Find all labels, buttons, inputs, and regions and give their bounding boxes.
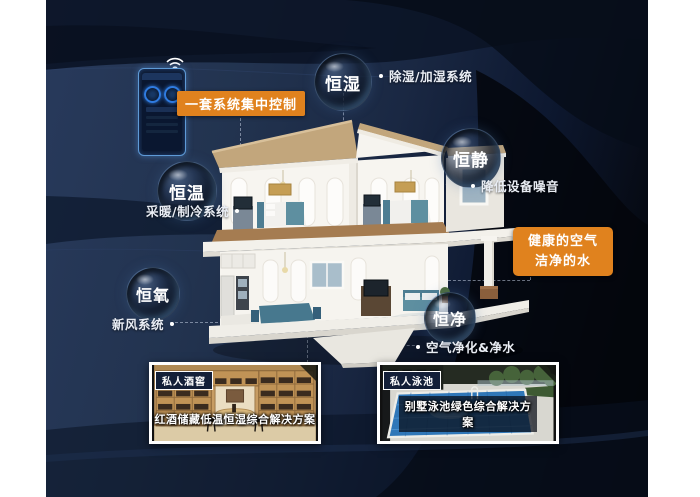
phone-ui-row <box>146 107 178 112</box>
bubble-constant-humidity: 恒湿 <box>314 53 372 111</box>
note-air-water-purification: 空气净化&净水 <box>416 337 515 356</box>
pool-tag: 私人泳池 <box>383 371 441 390</box>
phone-screen <box>142 73 182 151</box>
callout-line1: 健康的空气 <box>513 232 613 252</box>
note-dehumidify-humidify: 除湿/加湿系统 <box>379 66 472 85</box>
phone-ui-row <box>146 116 178 119</box>
bubble-label: 恒湿 <box>325 70 361 95</box>
bubble-label: 恒净 <box>433 306 467 330</box>
bubble-constant-oxygen: 恒氧 <box>126 267 180 321</box>
note-text: 采暖/制冷系统 <box>146 201 229 220</box>
smart-home-infographic: 一套系统集中控制 恒湿 恒静 恒温 恒氧 恒净 除湿/加湿系统 降低设备噪音 采… <box>0 0 700 497</box>
card-corner-ribbon <box>538 365 556 383</box>
wine-cellar-card: 私人酒窖 红酒储藏低温恒湿综合解决方案 <box>149 362 321 444</box>
bullet-dot <box>235 209 239 213</box>
phone-ui-row <box>146 130 178 133</box>
note-text: 空气净化&净水 <box>426 337 515 356</box>
pool-caption: 别墅泳池绿色综合解决方案 <box>399 396 536 432</box>
note-fresh-air: 新风系统 <box>112 314 174 333</box>
bullet-dot <box>170 322 174 326</box>
note-text: 降低设备噪音 <box>481 176 559 195</box>
note-text: 除湿/加湿系统 <box>389 66 472 85</box>
note-text: 新风系统 <box>112 314 164 333</box>
bullet-dot <box>416 345 420 349</box>
phone-ui-row <box>146 123 178 126</box>
card-corner-ribbon <box>300 365 318 383</box>
bubble-label: 恒静 <box>453 146 489 171</box>
note-heating-cooling: 采暖/制冷系统 <box>146 201 239 220</box>
bubble-label: 恒氧 <box>136 282 170 306</box>
callout-line2: 洁净的水 <box>513 252 613 272</box>
bullet-dot <box>379 74 383 78</box>
bullet-dot <box>471 184 475 188</box>
control-knob-icon <box>144 86 161 103</box>
central-control-label: 一套系统集中控制 <box>177 91 305 116</box>
bubble-label: 恒温 <box>169 179 205 204</box>
wine-cellar-caption: 红酒储藏低温恒湿综合解决方案 <box>152 411 318 427</box>
healthy-air-clean-water-callout: 健康的空气 洁净的水 <box>513 227 613 276</box>
phone-app-header <box>142 73 182 80</box>
wine-cellar-tag: 私人酒窖 <box>155 371 213 390</box>
note-reduce-noise: 降低设备噪音 <box>471 176 559 195</box>
pool-card: 私人泳池 别墅泳池绿色综合解决方案 <box>377 362 559 444</box>
